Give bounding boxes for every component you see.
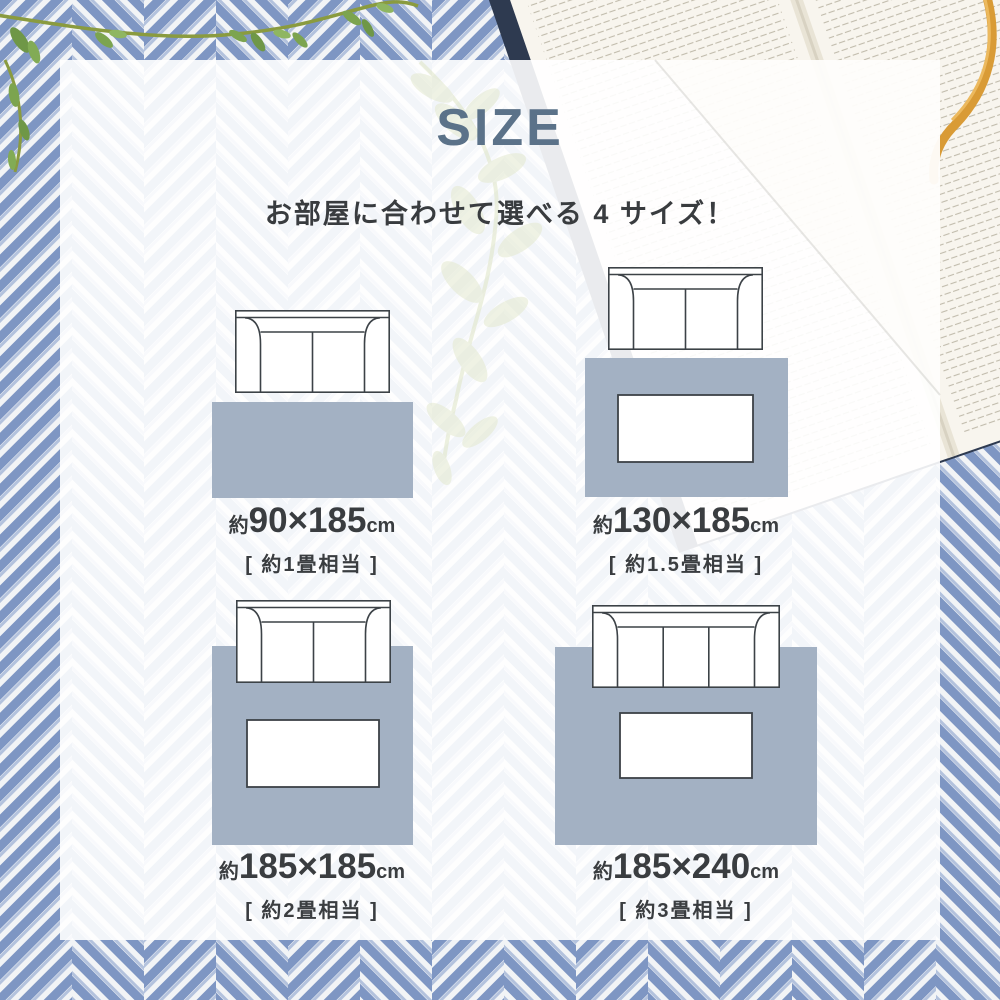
dimensions-value: 185×185 <box>239 847 376 886</box>
sofa-icon <box>237 601 390 682</box>
size-option-4: 約185×240cm [ 約3畳相当 ] <box>526 847 846 923</box>
tatami-note: [ 約3畳相当 ] <box>526 894 846 923</box>
unit-label: cm <box>376 861 405 883</box>
size-option-1: 約90×185cm [ 約1畳相当 ] <box>152 501 472 577</box>
dimensions-value: 130×185 <box>613 501 750 540</box>
sofa-icon <box>593 606 779 687</box>
approx-prefix: 約 <box>229 515 249 537</box>
size-diagram-90x185 <box>212 310 413 498</box>
table-icon <box>620 713 752 778</box>
sofa-icon <box>236 311 389 392</box>
size-dimensions: 約185×185cm <box>152 847 472 887</box>
product-size-infographic: SIZE お部屋に合わせて選べる 4 サイズ！ <box>0 0 1000 1000</box>
size-diagram-185x185 <box>212 600 413 845</box>
size-dimensions: 約90×185cm <box>152 501 472 541</box>
dimensions-value: 90×185 <box>249 501 367 540</box>
unit-label: cm <box>750 861 779 883</box>
table-icon <box>247 720 379 787</box>
tatami-note: [ 約2畳相当 ] <box>152 894 472 923</box>
approx-prefix: 約 <box>593 515 613 537</box>
page-title: SIZE <box>0 98 1000 158</box>
rug-icon <box>212 402 413 498</box>
size-diagram-130x185 <box>585 267 788 497</box>
size-diagram-185x240 <box>555 605 817 845</box>
size-option-3: 約185×185cm [ 約2畳相当 ] <box>152 847 472 923</box>
approx-prefix: 約 <box>219 861 239 883</box>
sofa-icon <box>609 268 762 349</box>
tatami-note: [ 約1畳相当 ] <box>152 548 472 577</box>
size-dimensions: 約130×185cm <box>526 501 846 541</box>
unit-label: cm <box>750 515 779 537</box>
size-dimensions: 約185×240cm <box>526 847 846 887</box>
dimensions-value: 185×240 <box>613 847 750 886</box>
page-subtitle: お部屋に合わせて選べる 4 サイズ！ <box>0 192 1000 231</box>
tatami-note: [ 約1.5畳相当 ] <box>526 548 846 577</box>
approx-prefix: 約 <box>593 861 613 883</box>
unit-label: cm <box>366 515 395 537</box>
size-option-2: 約130×185cm [ 約1.5畳相当 ] <box>526 501 846 577</box>
table-icon <box>618 395 753 462</box>
